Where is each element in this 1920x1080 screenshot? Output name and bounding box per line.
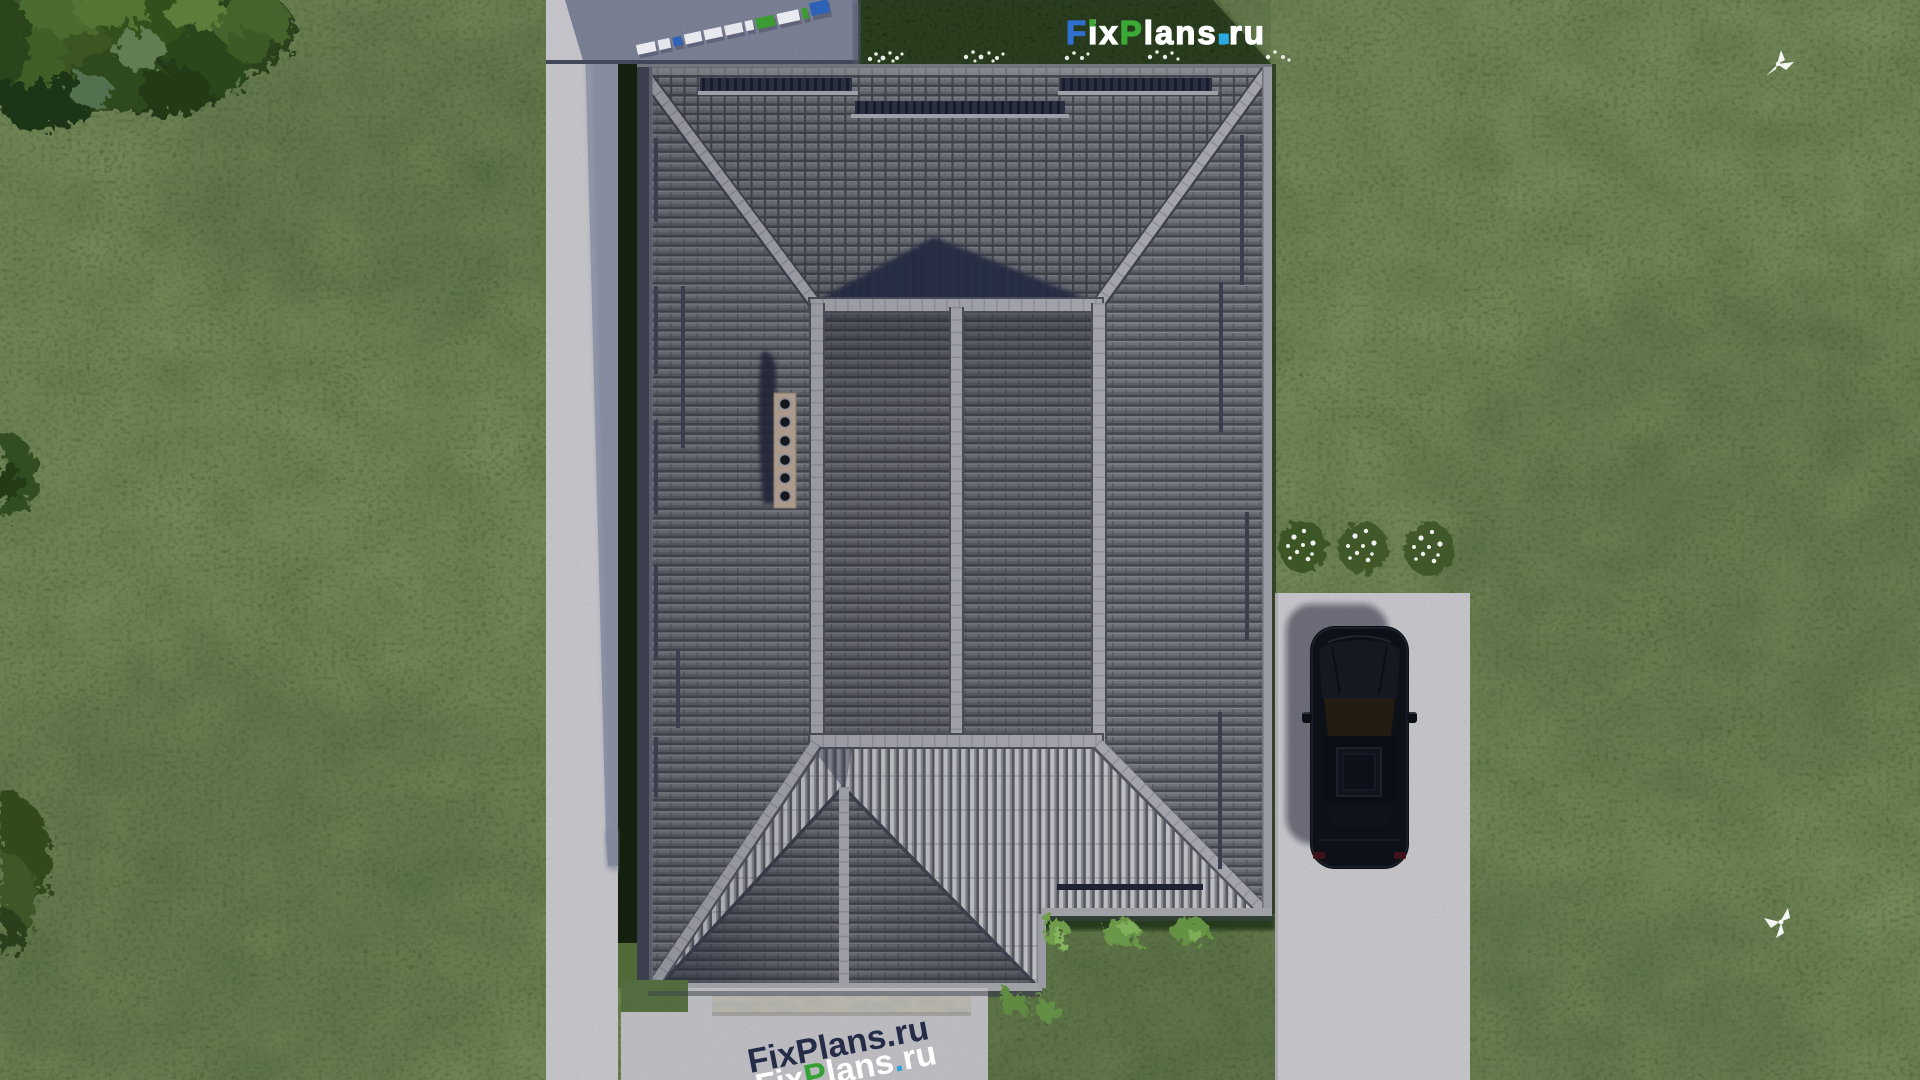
svg-text:FixPlans.ru: FixPlans.ru [1066, 14, 1266, 51]
